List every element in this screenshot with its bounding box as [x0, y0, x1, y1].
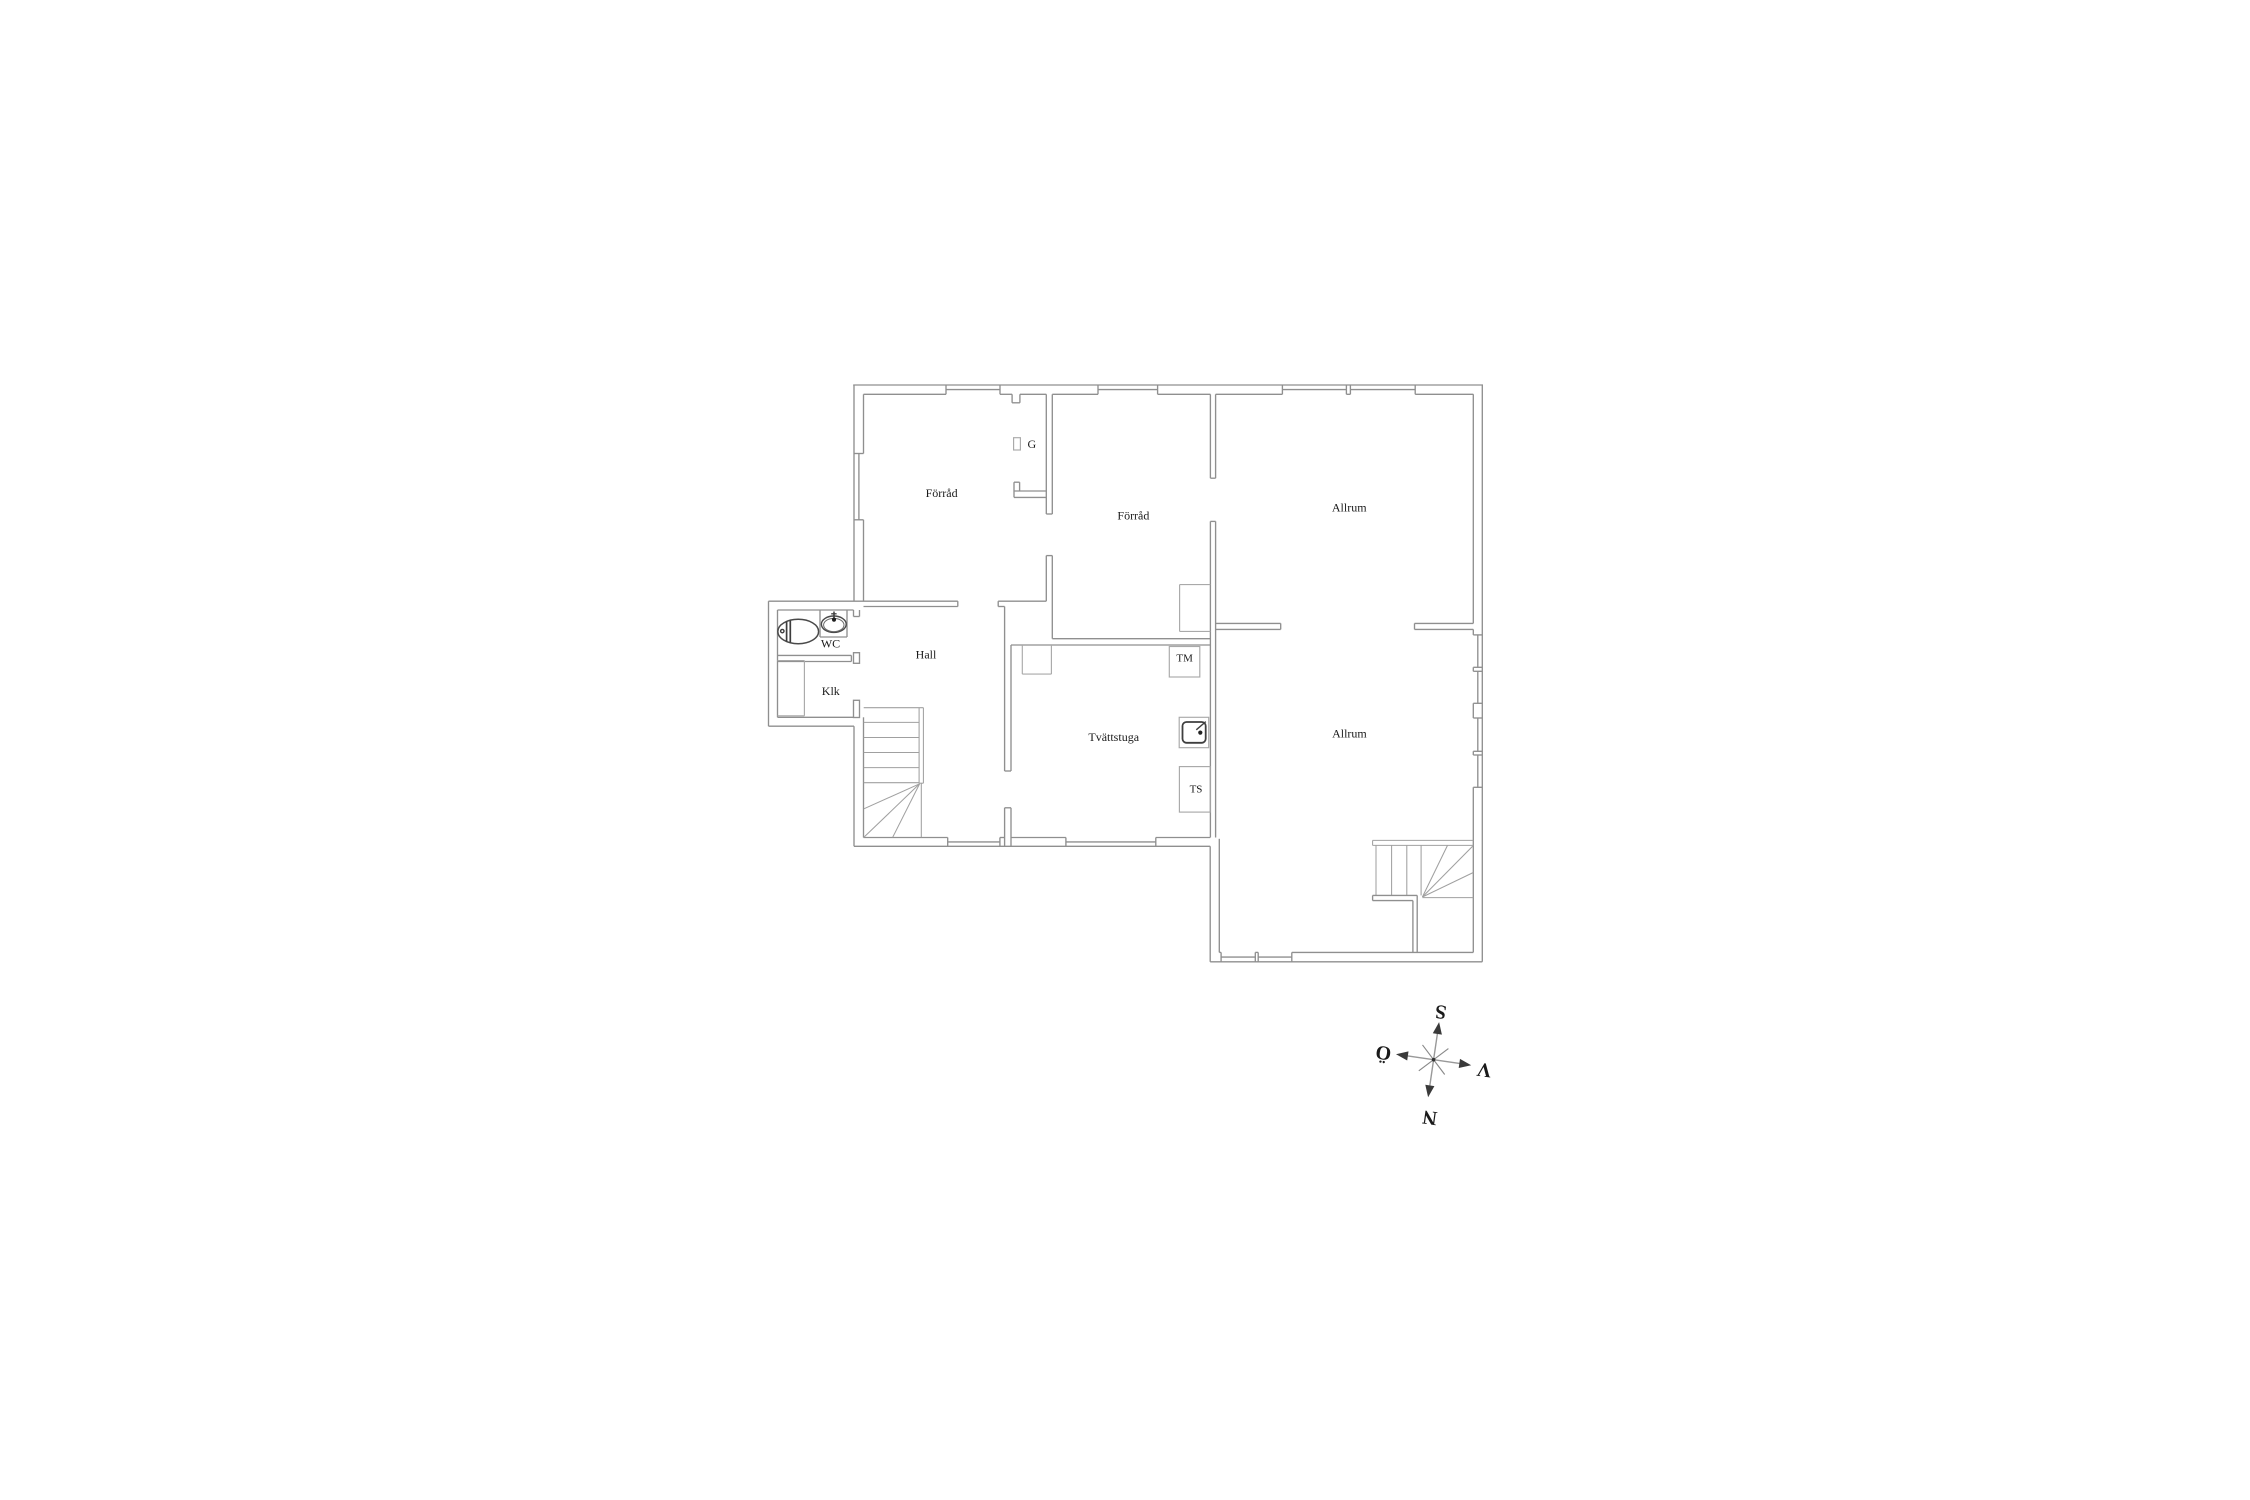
svg-text:G: G: [1027, 437, 1036, 451]
svg-text:Allrum: Allrum: [1332, 501, 1367, 515]
svg-text:Klk: Klk: [822, 684, 840, 698]
svg-text:TM: TM: [1176, 653, 1193, 665]
svg-text:Hall: Hall: [916, 647, 937, 661]
svg-text:Tvättstuga: Tvättstuga: [1088, 730, 1139, 744]
svg-text:Förråd: Förråd: [926, 486, 958, 500]
svg-text:WC: WC: [821, 636, 840, 650]
svg-text:Ö: Ö: [1374, 1041, 1393, 1066]
svg-text:TS: TS: [1190, 784, 1203, 796]
svg-text:Allrum: Allrum: [1332, 727, 1367, 741]
svg-text:Förråd: Förråd: [1117, 509, 1149, 523]
